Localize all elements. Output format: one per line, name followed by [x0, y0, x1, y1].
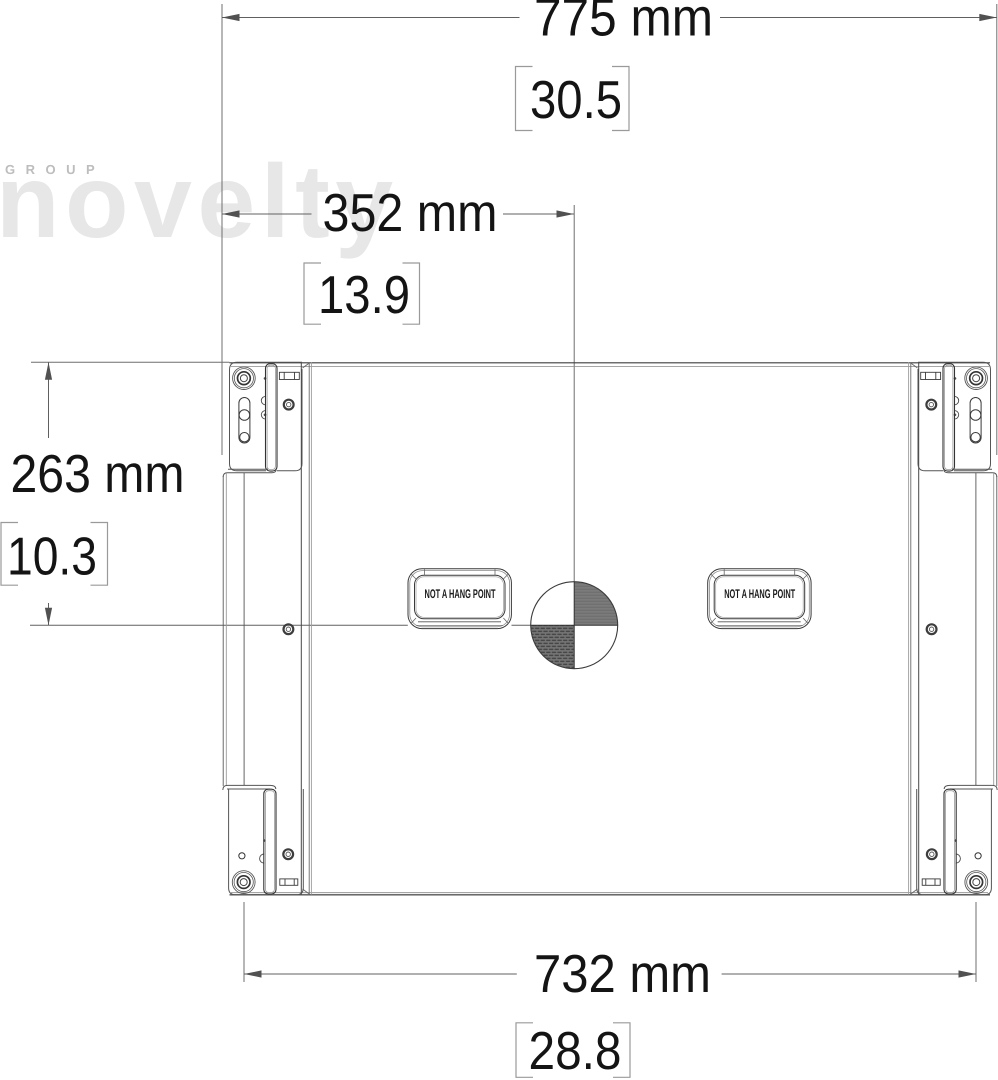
svg-text:352 mm: 352 mm [323, 184, 498, 243]
svg-text:28.8: 28.8 [529, 1022, 622, 1080]
svg-text:732 mm: 732 mm [534, 945, 711, 1004]
svg-text:10.3: 10.3 [7, 528, 97, 587]
svg-text:NOT A HANG POINT: NOT A HANG POINT [425, 587, 496, 601]
svg-text:30.5: 30.5 [530, 71, 622, 130]
svg-text:13.9: 13.9 [318, 266, 410, 325]
svg-text:263 mm: 263 mm [11, 445, 185, 504]
svg-text:775 mm: 775 mm [534, 0, 713, 48]
